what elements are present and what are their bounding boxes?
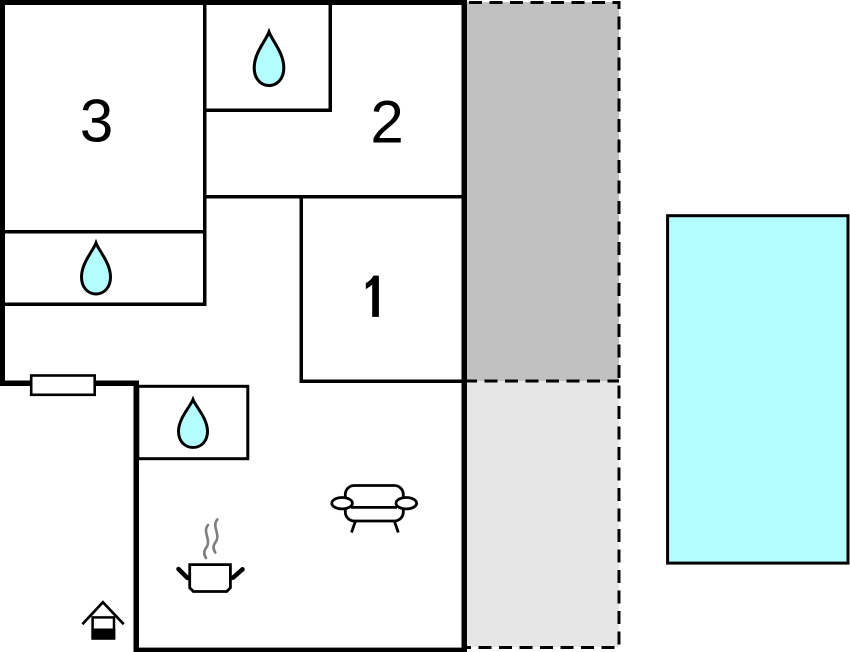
svg-text:2: 2 <box>370 89 403 156</box>
svg-text:3: 3 <box>80 88 113 155</box>
